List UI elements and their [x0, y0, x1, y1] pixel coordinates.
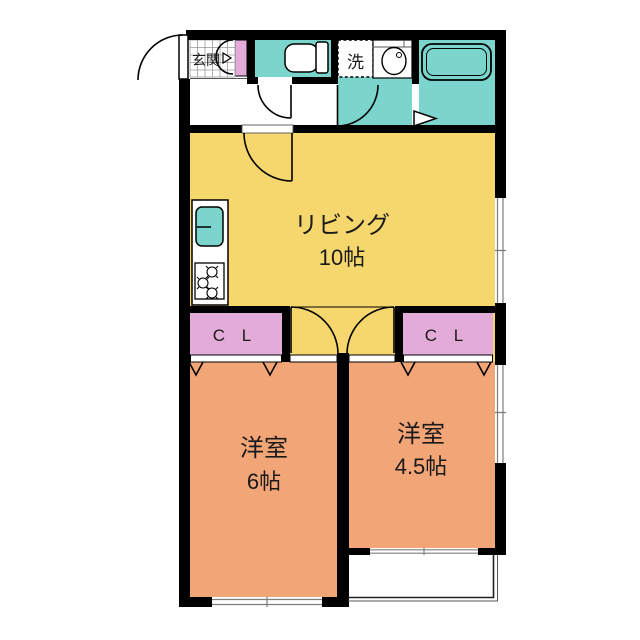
wall-right-lower — [495, 463, 506, 555]
wall-right-upper — [495, 30, 506, 198]
wall-washroom-bath — [412, 30, 419, 84]
living-room-label: リビング — [287, 205, 397, 240]
wall-bottom-left — [180, 597, 212, 607]
closet-right-track — [404, 355, 493, 362]
wall-closet-right-top — [395, 306, 495, 313]
wall-closet-left-top — [190, 306, 290, 313]
shoe-cabinet — [235, 40, 247, 76]
window-bedroom-right — [495, 365, 506, 463]
toilet-door — [258, 85, 291, 118]
wall-passage-left — [282, 306, 290, 362]
stove-icon — [195, 263, 224, 299]
laundry-label: 洗 — [338, 48, 373, 73]
bathtub-icon — [422, 44, 491, 80]
kitchen-unit — [192, 200, 228, 305]
toilet-icon — [285, 42, 328, 73]
wall-right-mid — [495, 303, 506, 365]
wall-toilet-bottom — [292, 77, 333, 84]
wall-bedroom-divider — [337, 353, 349, 607]
closet-right-label: C L — [403, 326, 491, 346]
washbasin-icon — [373, 40, 412, 78]
living-door-threshold — [242, 125, 293, 133]
bedroom-left-label: 洋室 — [214, 428, 314, 463]
faucet-dot-icon — [397, 53, 402, 58]
bedroom-right-door-sill — [349, 355, 395, 362]
wall-toilet-washroom — [331, 30, 338, 84]
floor-plan: 玄関 洗 リビング 10帖 C L C L 洋室 6帖 洋室 4.5帖 — [0, 0, 640, 640]
closet-left-track — [191, 355, 282, 362]
wall-passage-right — [395, 306, 403, 362]
wall-entrance-toilet — [247, 30, 255, 84]
wall-hall-living-right — [293, 125, 495, 133]
window-balcony-door — [370, 548, 478, 555]
living-room-size: 10帖 — [287, 240, 397, 272]
wall-hall-living-left — [190, 125, 242, 133]
window-living-right — [495, 198, 506, 303]
window-bedroom-bottom — [212, 597, 322, 607]
wall-top — [186, 30, 506, 40]
bedroom-left-size: 6帖 — [214, 464, 314, 496]
closet-left-label: C L — [190, 326, 280, 346]
toilet-door-opening — [258, 77, 292, 84]
bedroom-right-size: 4.5帖 — [371, 449, 471, 481]
floor-plan-drawing — [0, 0, 640, 640]
balcony-outline — [348, 555, 498, 601]
wall-balcony-right — [478, 548, 506, 555]
bedroom-right-label: 洋室 — [371, 414, 471, 449]
entrance-label: 玄関 — [190, 50, 222, 70]
wall-left — [179, 79, 190, 607]
bedroom-left-door-sill — [290, 355, 337, 362]
wall-balcony-left — [348, 548, 370, 555]
